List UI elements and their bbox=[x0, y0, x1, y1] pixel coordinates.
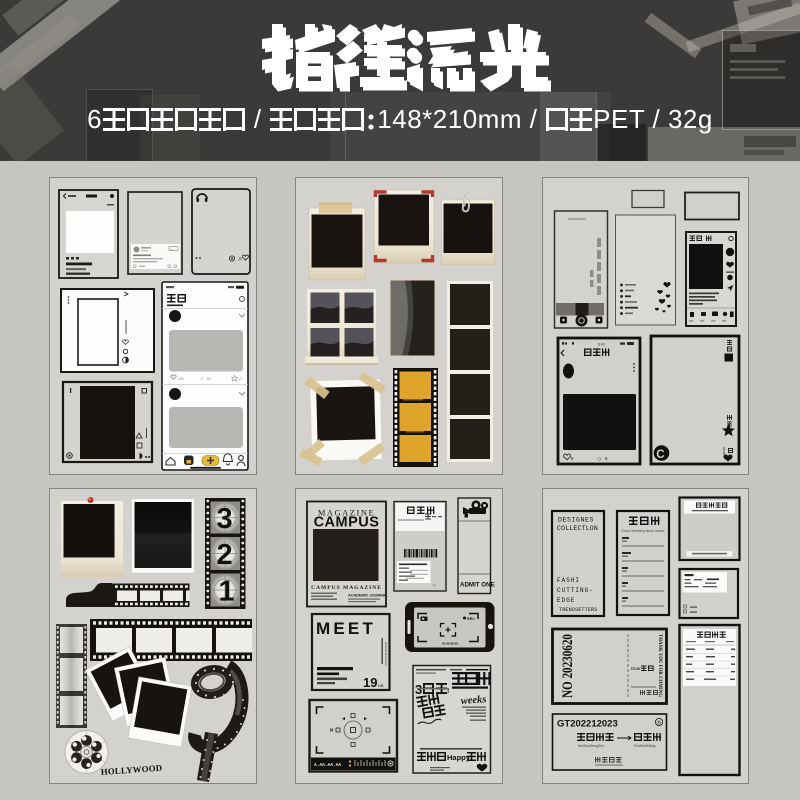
svg-text:aaa: aaa bbox=[700, 320, 705, 323]
svg-text:MEET: MEET bbox=[316, 619, 376, 638]
svg-text:Dear: Dear bbox=[631, 666, 641, 671]
svg-text:9:41: 9:41 bbox=[598, 343, 605, 347]
svg-text:TRENDSETTERS: TRENDSETTERS bbox=[559, 607, 597, 613]
svg-text:1: 1 bbox=[219, 576, 235, 608]
svg-text:Chooo bemtomg studs canenz: Chooo bemtomg studs canenz bbox=[621, 529, 665, 533]
svg-text:MAGAZINE DESIGN: MAGAZINE DESIGN bbox=[384, 642, 388, 666]
svg-text:HOLLYWOOD: HOLLYWOOD bbox=[100, 763, 162, 777]
svg-text:|·|·|: |·|·| bbox=[432, 583, 437, 587]
svg-text:FindSmBdDay: FindSmBdDay bbox=[634, 744, 656, 748]
svg-text:C: C bbox=[656, 449, 664, 461]
svg-text:NeiShuiDengShn: NeiShuiDengShn bbox=[578, 744, 604, 748]
svg-text:2: 2 bbox=[217, 539, 233, 571]
svg-text:COLLECTLON: COLLECTLON bbox=[557, 525, 598, 532]
svg-text:NO 20230620: NO 20230620 bbox=[560, 634, 576, 698]
svg-text:GT202212023: GT202212023 bbox=[557, 719, 618, 730]
svg-text:○: ○ bbox=[200, 377, 203, 383]
svg-text:ACADEMIC JOURNAL: ACADEMIC JOURNAL bbox=[348, 594, 389, 598]
svg-text:THANK YOU FOR COMING: THANK YOU FOR COMING bbox=[657, 634, 663, 698]
svg-text:CAMPUS MAGAZINE: CAMPUS MAGAZINE bbox=[311, 585, 382, 591]
svg-text:00:00:88:8%: 00:00:88:8% bbox=[442, 642, 459, 646]
svg-text:aaa: aaa bbox=[722, 320, 727, 323]
svg-text:aaa: aaa bbox=[689, 320, 694, 323]
svg-text:DESIGNES: DESIGNES bbox=[558, 517, 594, 524]
svg-text:3: 3 bbox=[217, 503, 233, 535]
svg-text:CUTTING-: CUTTING- bbox=[557, 587, 594, 594]
svg-text:○: ○ bbox=[597, 456, 601, 463]
svg-text:A.AA.AA.AA: A.AA.AA.AA bbox=[314, 762, 341, 768]
svg-text:19: 19 bbox=[363, 675, 377, 690]
svg-text::: : bbox=[654, 666, 655, 671]
svg-text:weeks: weeks bbox=[460, 694, 486, 707]
svg-text:REC: REC bbox=[467, 617, 475, 621]
svg-text:®: ® bbox=[657, 719, 661, 726]
svg-text:60: 60 bbox=[207, 377, 211, 381]
svg-text:259: 259 bbox=[178, 377, 184, 381]
svg-text:+··: +·· bbox=[171, 247, 175, 251]
svg-text:CAMPUS: CAMPUS bbox=[314, 515, 380, 531]
svg-text:27: 27 bbox=[239, 377, 243, 381]
svg-text:3: 3 bbox=[415, 682, 422, 697]
svg-text:AbcDf: AbcDf bbox=[722, 447, 726, 455]
svg-text:DB: DB bbox=[378, 683, 384, 688]
svg-text:ADMIT ONE: ADMIT ONE bbox=[460, 582, 495, 589]
svg-text:aaa: aaa bbox=[711, 320, 716, 323]
svg-text:FASHI: FASHI bbox=[557, 577, 580, 584]
svg-text:EDGE: EDGE bbox=[557, 597, 575, 604]
